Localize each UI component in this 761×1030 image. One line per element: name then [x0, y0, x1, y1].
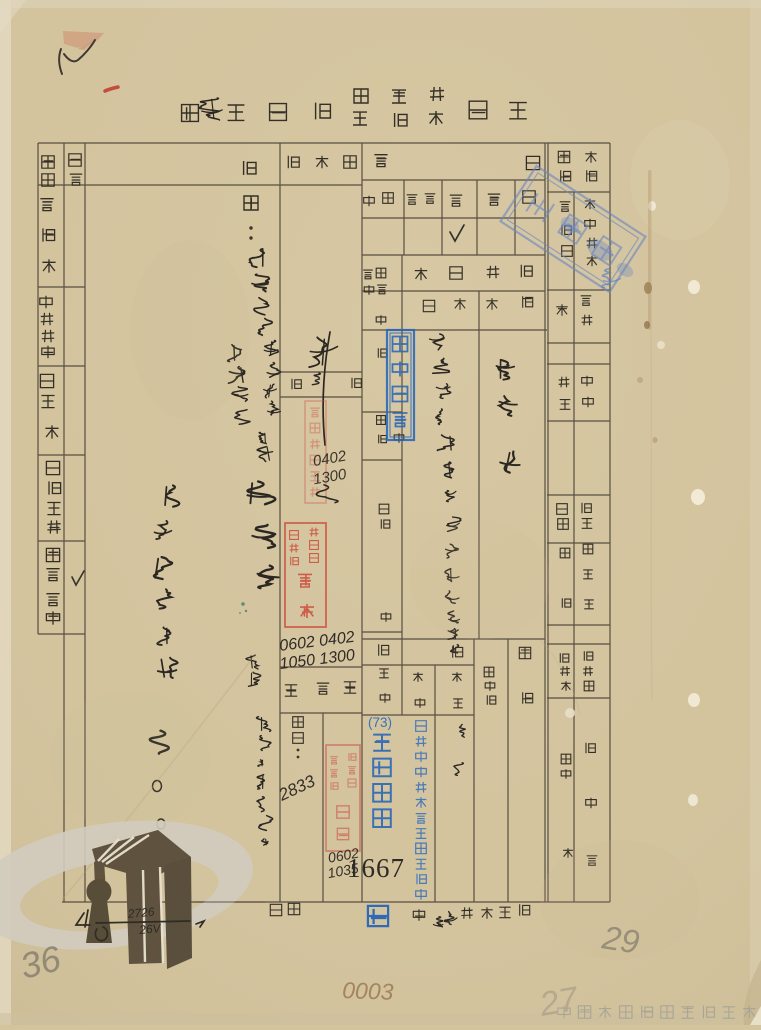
svg-text:(73): (73): [368, 715, 392, 730]
svg-text:1667: 1667: [347, 853, 405, 883]
svg-text:29: 29: [599, 918, 642, 960]
svg-text:0003: 0003: [342, 977, 394, 1005]
svg-text:27: 27: [536, 980, 582, 1024]
svg-text:26V: 26V: [138, 921, 162, 937]
svg-text:2726: 2726: [126, 905, 155, 921]
